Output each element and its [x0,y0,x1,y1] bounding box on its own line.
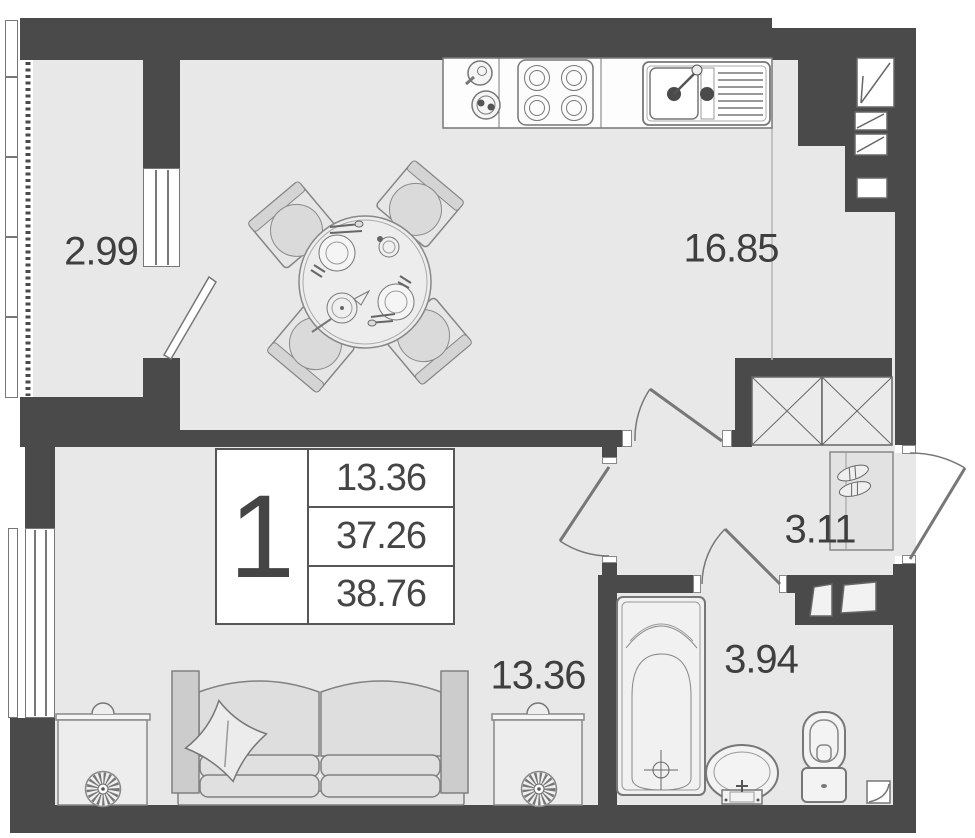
room-label-bathroom: 3.94 [724,638,798,683]
vent-shaft-icon [810,582,876,616]
stamp-areas: 13.36 37.26 38.76 [309,450,453,623]
toilet-icon [802,712,846,802]
stamp-living-area: 13.36 [309,450,453,508]
stove-icon [518,60,593,125]
stamp-rooms-count: 1 [217,450,309,623]
apartment-stamp: 1 13.36 37.26 38.76 [215,448,455,625]
plant-icon [522,772,557,807]
room-label-balcony: 2.99 [64,230,138,275]
pot-icon [472,91,500,119]
room-label-hallway: 3.11 [785,508,856,553]
nightstand-icon [56,703,150,807]
vent-shaft-icon [855,58,894,198]
dining-table-icon [299,216,431,348]
bathtub-icon [617,597,705,795]
wardrobe-shaft-icon [752,377,892,445]
stamp-total-area: 38.76 [309,567,453,623]
sofa-icon [172,671,468,805]
nightstand-icon [492,703,584,807]
room-label-kitchen-living: 16.85 [683,227,778,272]
furniture-layer [0,0,975,838]
room-label-bedroom: 13.36 [490,654,585,699]
stamp-area-no-balcony: 37.26 [309,508,453,566]
floor-plan: 2.99 16.85 3.11 13.36 3.94 1 13.36 37.26… [0,0,975,838]
vent-corner-icon [867,781,890,803]
plant-icon [86,772,121,807]
washbasin-icon [706,745,778,804]
kitchen-sink-icon [643,62,770,125]
